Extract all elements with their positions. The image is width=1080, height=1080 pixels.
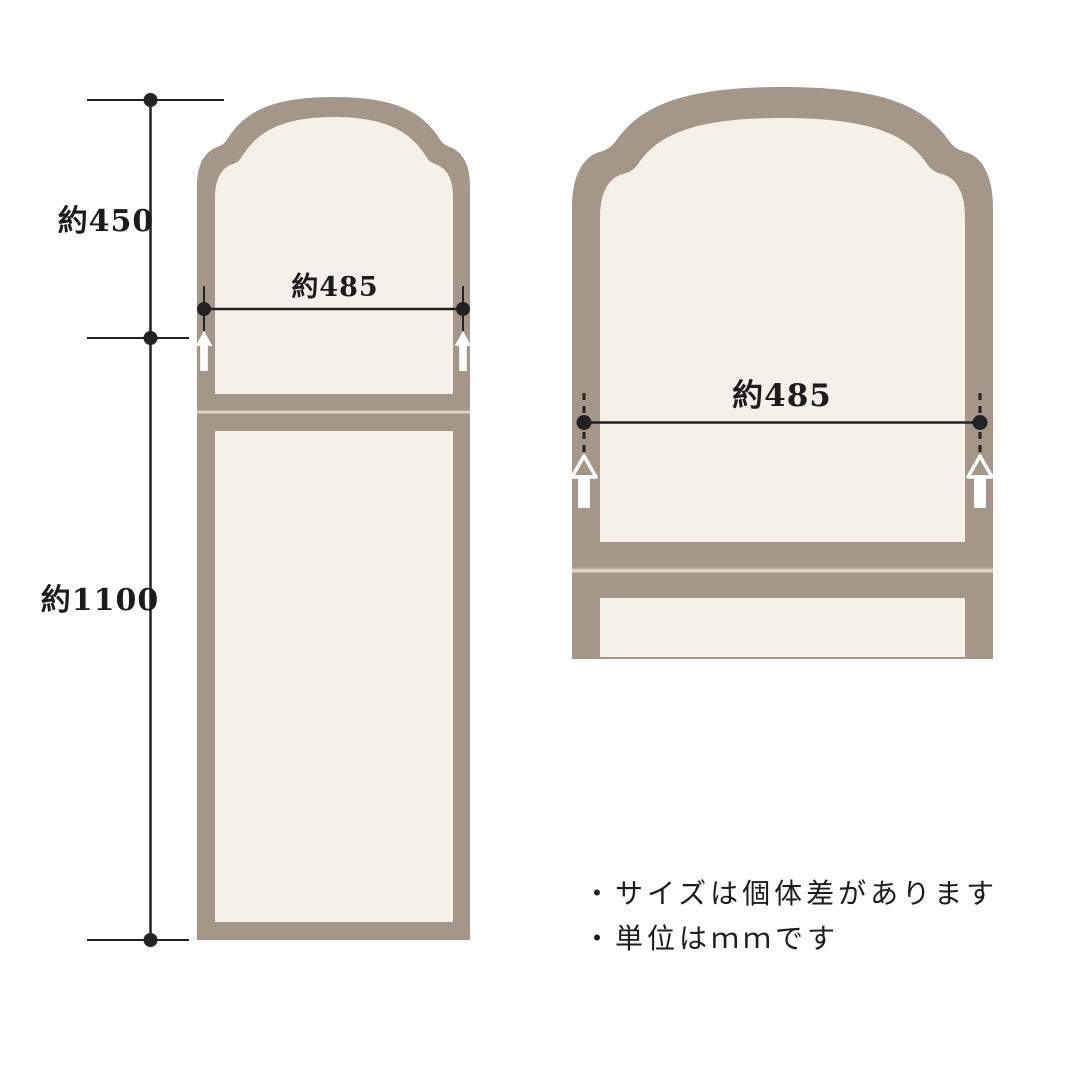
right-lower-panel: [600, 598, 965, 657]
height-1100-label: 約1100: [41, 583, 160, 618]
size-note-line1: ・サイズは個体差があります: [583, 877, 998, 910]
right-figure-detail-view: [572, 87, 993, 659]
mirror-dimension-diagram: 約450 約1100 約485: [0, 0, 1080, 1080]
dimension-diagram-page: 約450 約1100 約485: [0, 0, 1080, 1080]
dimension-dot: [144, 933, 158, 947]
left-width-485-label: 約485: [291, 271, 378, 303]
left-figure-full-view: [197, 97, 470, 940]
right-width-485-label: 約485: [732, 378, 832, 414]
right-frame-seam-dark: [572, 567, 993, 569]
dimension-dot: [577, 415, 592, 430]
left-frame-seam-dark: [197, 410, 470, 412]
left-frame-seam-light: [197, 411, 470, 414]
height-450-label: 約450: [58, 204, 155, 239]
dimension-dot: [973, 415, 988, 430]
dimension-dot: [456, 302, 470, 316]
right-frame-seam-light: [572, 569, 993, 573]
left-lower-panel: [215, 431, 453, 922]
dimension-dot: [144, 93, 158, 107]
left-mirror-panel: [215, 117, 453, 394]
notes: ・サイズは個体差があります ・単位はｍｍです: [583, 877, 998, 955]
right-mirror-panel: [600, 118, 965, 542]
dimension-dot: [144, 331, 158, 345]
size-note-line2: ・単位はｍｍです: [583, 922, 839, 955]
dimension-dot: [197, 302, 211, 316]
